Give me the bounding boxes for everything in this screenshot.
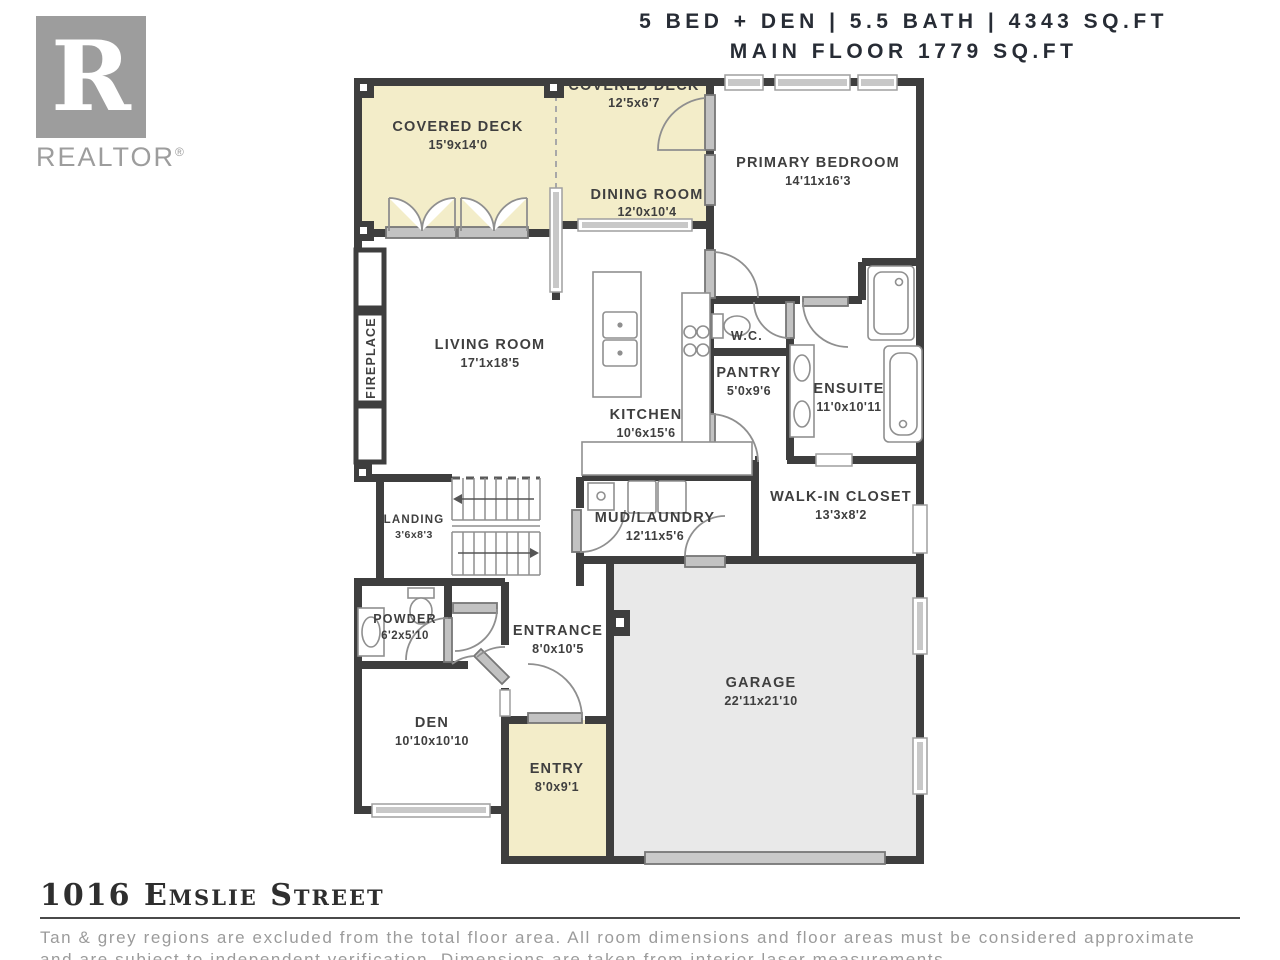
powder-label: POWDER bbox=[373, 612, 436, 626]
mud-laundry-dims: 12'11x5'6 bbox=[626, 529, 684, 543]
entry-sidelight-window bbox=[500, 690, 510, 716]
entry-dims: 8'0x9'1 bbox=[535, 780, 579, 794]
garage-dims: 22'11x21'10 bbox=[724, 694, 797, 708]
floor-plan-page: R REALTOR® 5 BED + DEN | 5.5 BATH | 4343… bbox=[0, 0, 1280, 960]
window-sill bbox=[861, 79, 894, 86]
window-sill bbox=[376, 807, 486, 813]
powder-dims: 6'2x5'10 bbox=[381, 630, 429, 642]
landing-dims: 3'6x8'3 bbox=[395, 529, 433, 541]
drain bbox=[597, 492, 605, 500]
living-west-window-upper bbox=[356, 250, 384, 308]
post-center bbox=[550, 84, 557, 91]
mud-fixtures bbox=[588, 481, 686, 513]
drain bbox=[618, 351, 622, 355]
covered-deck-left-dims: 15'9x14'0 bbox=[428, 138, 487, 152]
post-center bbox=[359, 469, 366, 476]
door-arc bbox=[455, 609, 497, 651]
ensuite-dims: 11'0x10'11 bbox=[816, 400, 881, 414]
ensuite-door bbox=[803, 297, 848, 347]
plan-footer: 1016 Emslie Street Tan & grey regions ar… bbox=[40, 878, 1240, 960]
door-arc bbox=[528, 664, 582, 718]
sink bbox=[794, 401, 810, 427]
post-center bbox=[360, 84, 367, 91]
disclaimer-line-2: and are subject to independent verificat… bbox=[40, 949, 1240, 960]
toilet-tank bbox=[408, 588, 434, 598]
primary-bedroom-label: PRIMARY BEDROOM bbox=[736, 155, 900, 171]
stairs bbox=[452, 478, 540, 575]
door-leaf bbox=[705, 95, 715, 150]
counter-bottom bbox=[582, 442, 752, 475]
window-sill bbox=[778, 79, 847, 86]
door-leaf bbox=[705, 250, 715, 298]
walkin-closet-dims: 13'3x8'2 bbox=[815, 508, 867, 522]
floor-plan-svg: COVERED DECK 15'9x14'0 COVERED DECK 12'5… bbox=[0, 0, 1280, 960]
door-leaf bbox=[803, 297, 848, 306]
living-room-label: LIVING ROOM bbox=[435, 337, 546, 353]
drain bbox=[618, 323, 622, 327]
sink bbox=[794, 355, 810, 381]
drain bbox=[900, 421, 907, 428]
toilet-tank bbox=[712, 314, 723, 338]
burner bbox=[684, 344, 696, 356]
arrow-up-head bbox=[453, 494, 462, 504]
ensuite-label: ENSUITE bbox=[813, 381, 884, 397]
address-title: 1016 Emslie Street bbox=[40, 878, 1240, 913]
entrance-closet-door bbox=[453, 603, 497, 651]
entrance-dims: 8'0x10'5 bbox=[532, 642, 584, 656]
door-sill bbox=[685, 556, 725, 567]
footer-rule bbox=[40, 917, 1240, 919]
mud-laundry-label: MUD/LAUNDRY bbox=[595, 510, 716, 526]
primary-bedroom-door bbox=[705, 250, 758, 298]
wc-label: W.C. bbox=[731, 329, 763, 343]
ensuite-window bbox=[816, 454, 852, 466]
arrow-down-head bbox=[530, 548, 539, 558]
entrance-label: ENTRANCE bbox=[513, 623, 603, 639]
door-leaf bbox=[786, 302, 794, 338]
washer bbox=[628, 481, 656, 513]
door-leaf bbox=[453, 603, 497, 613]
door-arc bbox=[714, 252, 758, 298]
dryer bbox=[658, 481, 686, 513]
window-sill bbox=[728, 79, 760, 86]
kitchen-dims: 10'6x15'6 bbox=[616, 426, 675, 440]
landing-label: LANDING bbox=[384, 514, 445, 526]
door-leaf bbox=[444, 618, 452, 662]
dining-label: DINING ROOM bbox=[590, 187, 703, 203]
burner bbox=[684, 326, 696, 338]
garage-area bbox=[610, 560, 920, 860]
living-room-dims: 17'1x18'5 bbox=[460, 356, 519, 370]
door-arc bbox=[803, 302, 848, 347]
window-sill bbox=[553, 192, 559, 288]
pantry-dims: 5'0x9'6 bbox=[727, 384, 771, 398]
window-sill bbox=[582, 222, 688, 228]
dining-dims: 12'0x10'4 bbox=[617, 205, 676, 219]
door-leaf bbox=[572, 510, 581, 552]
primary-bedroom-dims: 14'11x16'3 bbox=[785, 174, 851, 188]
den-dims: 10'10x10'10 bbox=[395, 734, 469, 748]
door-sill bbox=[705, 155, 715, 205]
garage-overhead-door bbox=[645, 852, 885, 864]
living-west-window-lower bbox=[356, 406, 384, 462]
garage-label: GARAGE bbox=[726, 675, 797, 691]
drain bbox=[896, 279, 903, 286]
covered-deck-left-label: COVERED DECK bbox=[392, 119, 523, 135]
front-door bbox=[528, 664, 582, 723]
kitchen-island bbox=[593, 272, 641, 397]
stair-risers-lower bbox=[452, 526, 540, 575]
disclaimer-line-1: Tan & grey regions are excluded from the… bbox=[40, 927, 1240, 949]
burner bbox=[697, 326, 709, 338]
burner bbox=[697, 344, 709, 356]
walkin-closet-label: WALK-IN CLOSET bbox=[770, 489, 912, 505]
covered-deck-top-label: COVERED DECK bbox=[568, 78, 699, 94]
counter bbox=[682, 293, 710, 463]
door-sill bbox=[528, 713, 582, 723]
closet-window bbox=[913, 505, 927, 553]
window-sill bbox=[917, 742, 923, 790]
covered-deck-top-dims: 12'5x6'7 bbox=[608, 96, 660, 110]
fireplace-label: FIREPLACE bbox=[364, 317, 378, 399]
kitchen-label: KITCHEN bbox=[610, 407, 683, 423]
post-center bbox=[360, 227, 367, 234]
den-label: DEN bbox=[415, 715, 449, 731]
window-sill bbox=[917, 602, 923, 650]
bedroom-top-windows bbox=[725, 75, 897, 90]
entry-label: ENTRY bbox=[530, 761, 585, 777]
post-center bbox=[616, 618, 624, 627]
pantry-label: PANTRY bbox=[716, 365, 781, 381]
ensuite-fixtures bbox=[790, 266, 922, 442]
